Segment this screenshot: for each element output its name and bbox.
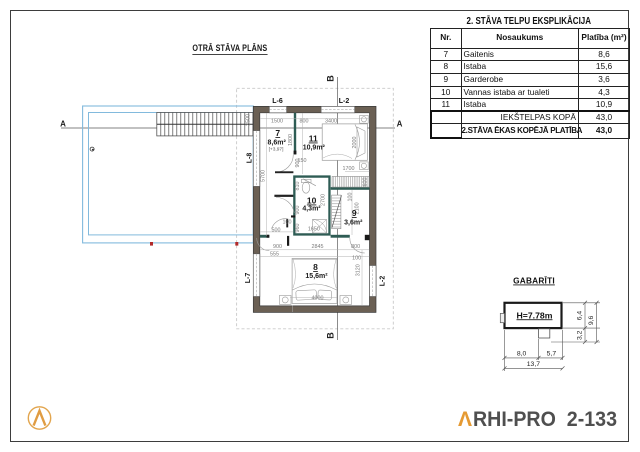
svg-text:960: 960 [295, 224, 301, 233]
svg-text:H=7.78m: H=7.78m [517, 310, 553, 320]
svg-text:L-2: L-2 [339, 98, 350, 105]
svg-text:8,6m²: 8,6m² [268, 140, 287, 147]
svg-text:1500: 1500 [271, 119, 283, 125]
svg-text:2845: 2845 [312, 244, 324, 250]
svg-text:9,6: 9,6 [588, 315, 595, 325]
svg-text:900: 900 [273, 244, 282, 250]
svg-text:1800: 1800 [288, 134, 294, 146]
svg-text:4,3m²: 4,3m² [302, 206, 321, 213]
svg-text:900: 900 [295, 159, 301, 168]
svg-text:B: B [326, 75, 336, 82]
svg-text:10: 10 [307, 196, 317, 206]
svg-text:100: 100 [352, 256, 361, 262]
svg-text:600: 600 [363, 178, 369, 187]
svg-text:555: 555 [270, 251, 279, 257]
svg-text:8: 8 [313, 262, 318, 272]
svg-text:L-2: L-2 [380, 276, 387, 287]
svg-text:B: B [326, 332, 336, 339]
svg-text:3400: 3400 [325, 119, 337, 125]
svg-text:2700: 2700 [321, 194, 327, 206]
svg-text:A: A [60, 120, 66, 129]
svg-text:800: 800 [351, 244, 360, 250]
svg-text:100: 100 [348, 193, 354, 202]
svg-text:9: 9 [352, 208, 357, 218]
svg-text:11: 11 [309, 134, 318, 144]
svg-text:L-8: L-8 [247, 153, 254, 164]
svg-text:3120: 3120 [356, 264, 362, 276]
svg-text:Λ: Λ [458, 408, 472, 431]
svg-text:A: A [397, 120, 403, 129]
svg-text:15,6m²: 15,6m² [305, 273, 328, 280]
svg-text:[+3,97]: [+3,97] [269, 147, 284, 153]
svg-text:1650: 1650 [308, 226, 320, 232]
svg-text:810: 810 [295, 182, 301, 191]
svg-text:6,4: 6,4 [577, 311, 584, 321]
svg-text:13,7: 13,7 [527, 361, 540, 368]
svg-text:5,7: 5,7 [547, 350, 557, 357]
svg-text:L-6: L-6 [272, 98, 283, 105]
svg-text:4000: 4000 [312, 296, 324, 302]
svg-text:RHI-PRO 2-133: RHI-PRO 2-133 [473, 408, 617, 431]
svg-text:2000: 2000 [352, 137, 358, 149]
svg-text:500: 500 [272, 228, 281, 234]
svg-text:7: 7 [275, 128, 280, 138]
svg-text:GABARĪTI: GABARĪTI [513, 276, 555, 286]
svg-text:3,2: 3,2 [577, 330, 584, 340]
svg-text:L-7: L-7 [245, 273, 252, 284]
svg-text:10,9m²: 10,9m² [303, 145, 326, 152]
svg-text:3,6m²: 3,6m² [344, 220, 363, 227]
svg-text:800: 800 [300, 119, 309, 125]
svg-text:8,0: 8,0 [517, 350, 527, 357]
svg-text:1700: 1700 [343, 166, 355, 172]
svg-text:900: 900 [295, 206, 301, 215]
svg-text:2500: 2500 [246, 114, 252, 126]
svg-text:100: 100 [283, 220, 292, 226]
svg-text:5700: 5700 [260, 170, 266, 182]
